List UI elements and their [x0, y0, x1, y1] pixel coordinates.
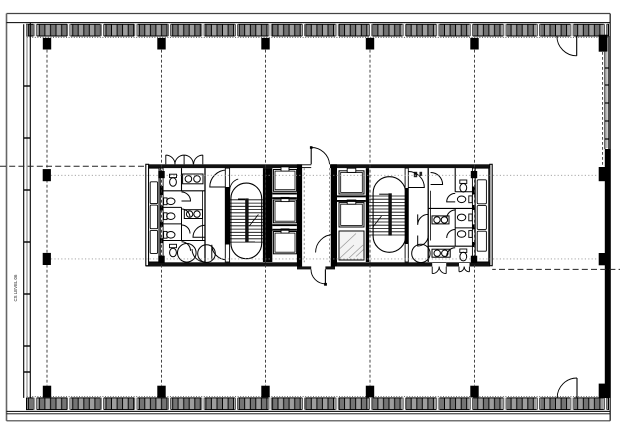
svg-text:CS LEVEL 06: CS LEVEL 06 [13, 274, 18, 301]
